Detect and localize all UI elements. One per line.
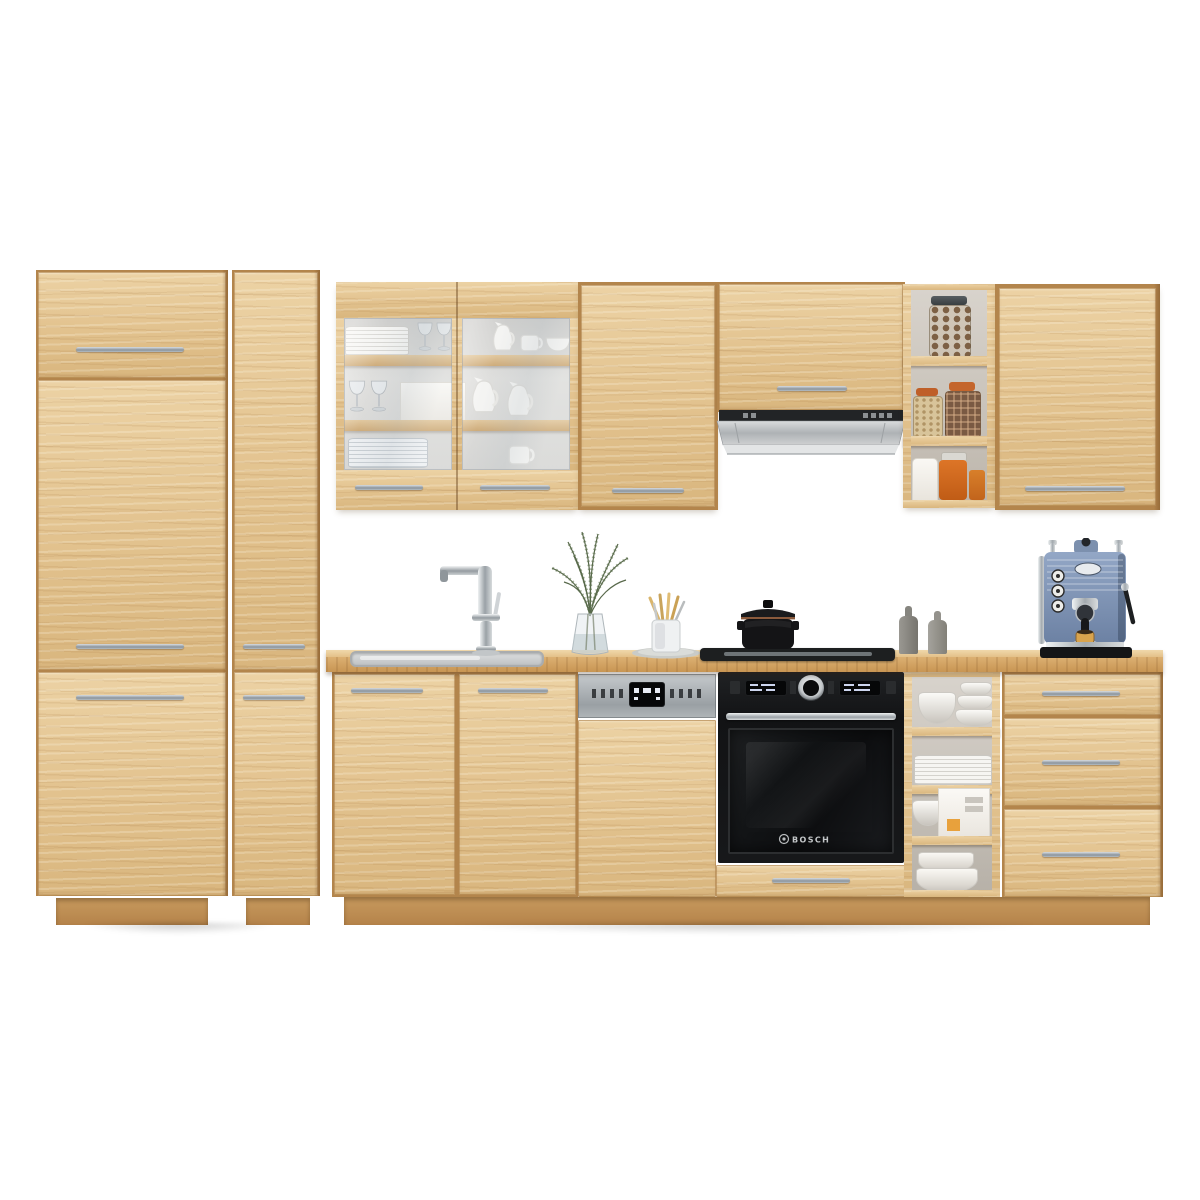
floor-shadow-left: [44, 923, 314, 939]
shelf-bottom-divider: [904, 727, 1000, 736]
cast-iron-pot: [737, 594, 799, 654]
shelf-bottom-divider: [904, 836, 1000, 845]
bottle-tall: [899, 616, 918, 654]
larder-top-door-handle: [76, 347, 184, 352]
orange-jar-large: [939, 452, 967, 500]
casserole-dish: [916, 868, 978, 892]
shelf-bottom-frame-bottom: [904, 890, 1000, 897]
orange-jar-body: [939, 460, 967, 500]
oven-base-drawer-handle: [772, 878, 850, 883]
sink-base-cabinet: [332, 672, 578, 897]
drawer-bottom-handle: [1042, 852, 1120, 857]
oven-control-panel: [718, 672, 904, 704]
open-shelf-unit-bottom: [904, 672, 1000, 897]
narrow-bottom-door-handle: [243, 695, 305, 700]
sink-base-door-left: [334, 674, 455, 895]
sink-base-door-right: [459, 674, 576, 895]
hood-cabinet-door-handle: [777, 386, 847, 391]
dishwasher-display: [630, 683, 664, 706]
narrow-side-shade: [314, 270, 320, 896]
larder-middle-door-handle: [76, 644, 184, 649]
plaid-jar-body: [945, 391, 981, 438]
oven-housing: BOSCH: [716, 672, 906, 897]
box-label: [965, 806, 983, 812]
svg-text:BOSCH: BOSCH: [792, 836, 830, 845]
oven-display-left: [746, 681, 786, 695]
oven-button: [730, 681, 740, 694]
plant-needles: [552, 532, 628, 614]
dishwasher: [578, 672, 716, 897]
larder-top-door: [38, 272, 226, 378]
display-right-stile: [570, 318, 578, 470]
sink-base-door-right-handle: [478, 688, 548, 693]
larder-side-shade: [222, 270, 228, 896]
box-label-orange: [947, 819, 960, 831]
hood-housing-cabinet: [717, 282, 905, 458]
dishwasher-buttons-right: [670, 689, 704, 698]
kitchen-product-photo: BOSCH: [0, 0, 1200, 1200]
glass-pane-right: [462, 318, 570, 470]
narrow-plinth: [246, 898, 310, 925]
shelf-top-frame-right: [987, 284, 995, 508]
plant-in-vase: [540, 526, 640, 658]
grain-jar: [913, 388, 941, 436]
oven-button: [790, 681, 796, 694]
wall-single-door-handle: [612, 488, 684, 493]
oven-glass-reflection: [746, 742, 866, 828]
shelf-bottom-frame-top: [904, 672, 1000, 677]
glass-door-left-handle: [355, 485, 423, 490]
dishwasher-buttons-left: [592, 689, 626, 698]
walnut-jar: [929, 296, 969, 356]
wall-single-door: [581, 285, 715, 507]
kitchen-faucet: [438, 556, 520, 656]
oven-button: [886, 681, 896, 694]
wall-cabinet-right: [995, 284, 1160, 510]
oven-button: [828, 681, 834, 694]
display-door-gap: [456, 282, 458, 510]
tall-narrow-unit: [232, 270, 320, 927]
tall-larder-unit: [36, 270, 228, 927]
shelf-top-frame-top: [903, 284, 995, 290]
drawer-middle-handle: [1042, 760, 1120, 765]
larder-middle-door: [38, 380, 226, 670]
drawer-unit: [1002, 672, 1163, 897]
narrow-bottom-door: [234, 672, 318, 896]
oven-display-right: [840, 681, 880, 695]
larder-plinth: [56, 898, 208, 925]
oven-knob: [798, 675, 824, 701]
glass-door-right-handle: [480, 485, 550, 490]
open-shelf-unit-top: [903, 284, 995, 508]
narrow-tall-door-handle: [243, 644, 305, 649]
grain-jar-body: [913, 396, 943, 438]
dishwasher-wood-panel: [578, 720, 716, 897]
paper-box: [938, 788, 990, 837]
plaid-jar-lid: [949, 382, 975, 391]
floor-shadow-right: [330, 923, 1158, 939]
hood-cabinet-body: [717, 282, 905, 412]
drawer-unit-side-shade: [1157, 672, 1163, 897]
shelf-top-frame-left: [903, 284, 911, 508]
extractor-hood: [715, 410, 907, 458]
orange-jar-small: [969, 470, 985, 500]
sink-highlight: [360, 656, 480, 660]
shelf-top-frame-bottom: [903, 500, 995, 508]
hood-cabinet-door: [719, 284, 903, 410]
walnut-jar-body: [929, 305, 971, 358]
glass-pane-left: [344, 318, 452, 470]
espresso-machine: [1032, 538, 1144, 660]
grey-bottles: [899, 606, 951, 654]
shelf-top-divider: [903, 436, 995, 446]
larder-bottom-door: [38, 672, 226, 896]
oven-knob-center: [803, 680, 819, 696]
utensil-holder: [628, 592, 704, 660]
wall-right-side-shade: [1154, 284, 1160, 510]
wall-cabinet-single: [578, 282, 718, 510]
white-canister: [912, 458, 938, 502]
plaid-jar: [945, 382, 979, 436]
shelf-top-divider: [903, 356, 995, 366]
sink-base-door-left-handle: [351, 688, 423, 693]
vase-water: [572, 634, 608, 654]
wall-right-door: [999, 288, 1156, 506]
drawer-top-handle: [1042, 691, 1120, 696]
shelf-bottom-frame-right: [992, 672, 1000, 897]
shelf-bottom-frame-left: [904, 672, 912, 897]
plate-stack: [914, 755, 992, 785]
glass-display-cabinet: [336, 282, 578, 510]
machine-buttons: [1052, 570, 1064, 612]
built-in-oven: BOSCH: [718, 672, 904, 863]
oven-brand-logo: BOSCH: [776, 832, 846, 846]
base-plinth: [344, 897, 1150, 925]
walnut-jar-lid: [931, 296, 967, 305]
wall-right-door-handle: [1025, 486, 1125, 491]
larder-bottom-door-handle: [76, 695, 184, 700]
brand-badge: [1075, 563, 1101, 575]
steam-wand: [1125, 588, 1133, 622]
bottle-short: [928, 620, 947, 654]
display-left-stile: [336, 318, 344, 470]
oven-handle: [726, 713, 896, 720]
oven-door-glass: BOSCH: [728, 728, 894, 854]
dishwasher-control-strip: [578, 674, 716, 718]
box-label: [965, 797, 983, 803]
grain-jar-lid: [916, 388, 938, 396]
narrow-tall-door: [234, 272, 318, 670]
